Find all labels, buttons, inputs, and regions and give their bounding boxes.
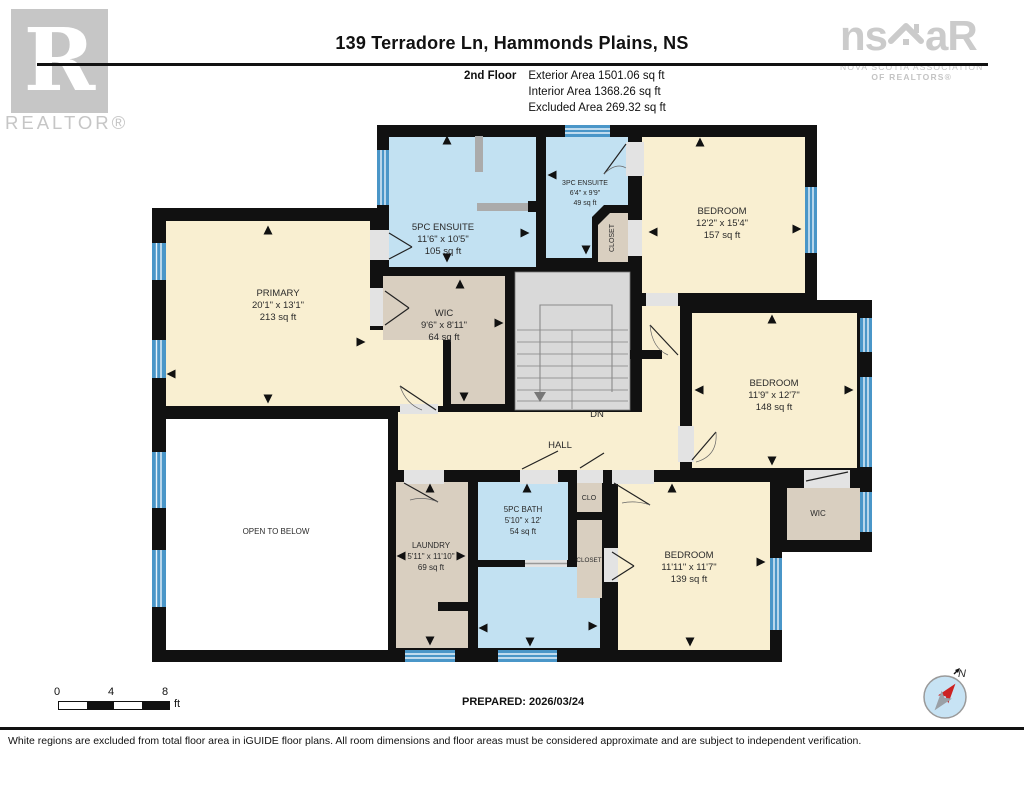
floor-label: 2nd Floor <box>464 70 516 114</box>
floor-plan: PRIMARY 20'1" x 13'1" 213 sq ft 5PC ENSU… <box>0 0 1024 791</box>
svg-text:139 sq ft: 139 sq ft <box>671 574 708 585</box>
scale-tick-8: 8 <box>162 686 168 698</box>
excluded-area: Excluded Area 269.32 sq ft <box>528 102 665 114</box>
scale-tick-0: 0 <box>54 686 60 698</box>
svg-text:6'4" x 9'9": 6'4" x 9'9" <box>570 190 601 197</box>
svg-text:BEDROOM: BEDROOM <box>697 206 746 217</box>
label-bedroom-mid: BEDROOM 11'9" x 12'7" 148 sq ft <box>748 378 799 413</box>
svg-text:9'6" x 8'11": 9'6" x 8'11" <box>421 320 467 331</box>
label-clo: CLO <box>582 495 597 502</box>
svg-text:11'11" x 11'7": 11'11" x 11'7" <box>661 562 716 573</box>
room-stairs <box>515 272 630 410</box>
svg-text:213 sq ft: 213 sq ft <box>260 312 297 323</box>
svg-text:BEDROOM: BEDROOM <box>664 550 713 561</box>
svg-text:11'9" x 12'7": 11'9" x 12'7" <box>748 390 799 401</box>
svg-text:49 sq ft: 49 sq ft <box>574 200 597 207</box>
svg-text:PRIMARY: PRIMARY <box>256 288 300 299</box>
exterior-area: Exterior Area 1501.06 sq ft <box>528 70 665 82</box>
page-title: 139 Terradore Ln, Hammonds Plains, NS <box>0 33 1024 54</box>
label-wic-bottom: WIC <box>810 509 826 518</box>
svg-text:5'11" x 11'10": 5'11" x 11'10" <box>407 552 454 561</box>
svg-text:64 sq ft: 64 sq ft <box>428 332 460 343</box>
realtor-logo-label: REALTOR® <box>5 112 128 134</box>
svg-text:BEDROOM: BEDROOM <box>749 378 798 389</box>
prepared-date: PREPARED: 2026/03/24 <box>462 696 584 708</box>
label-dn: DN <box>590 409 604 420</box>
floor-summary: 2nd Floor Exterior Area 1501.06 sq ft In… <box>464 70 666 114</box>
svg-text:157 sq ft: 157 sq ft <box>704 230 741 241</box>
svg-text:WIC: WIC <box>435 308 454 319</box>
label-hall: HALL <box>548 440 572 451</box>
interior-area: Interior Area 1368.26 sq ft <box>528 86 665 98</box>
nsar-subtitle-2: OF REALTORS® <box>840 72 983 82</box>
header-divider-line <box>37 63 988 66</box>
svg-text:5PC ENSUITE: 5PC ENSUITE <box>412 222 474 233</box>
svg-text:5'10" x 12': 5'10" x 12' <box>505 516 542 525</box>
svg-text:3PC ENSUITE: 3PC ENSUITE <box>562 180 608 187</box>
label-closet-top: CLOSET <box>609 223 616 252</box>
svg-text:54 sq ft: 54 sq ft <box>510 527 537 536</box>
svg-text:20'1" x 13'1": 20'1" x 13'1" <box>252 300 304 311</box>
realtor-logo-letter: R <box>24 18 95 104</box>
compass-icon: N <box>924 668 966 718</box>
svg-text:105 sq ft: 105 sq ft <box>425 246 462 257</box>
footer-divider-line <box>0 727 1024 730</box>
compass-n-label: N <box>958 668 966 680</box>
scale-unit: ft <box>174 698 180 710</box>
label-closet-bath: CLOSET <box>576 557 601 564</box>
svg-text:69 sq ft: 69 sq ft <box>418 563 445 572</box>
realtor-logo: R <box>11 9 108 113</box>
svg-text:148 sq ft: 148 sq ft <box>756 402 793 413</box>
svg-text:LAUNDRY: LAUNDRY <box>412 541 451 550</box>
scale-tick-4: 4 <box>108 686 114 698</box>
svg-text:5PC BATH: 5PC BATH <box>504 505 543 514</box>
floor-plan-page: { "header": { "title": "139 Terradore Ln… <box>0 0 1024 791</box>
footer-disclaimer: White regions are excluded from total fl… <box>8 735 861 747</box>
scale-bar <box>58 701 170 710</box>
label-open-to-below: OPEN TO BELOW <box>243 527 310 536</box>
svg-text:11'6" x 10'5": 11'6" x 10'5" <box>417 234 468 245</box>
svg-text:12'2" x 15'4": 12'2" x 15'4" <box>696 218 748 229</box>
